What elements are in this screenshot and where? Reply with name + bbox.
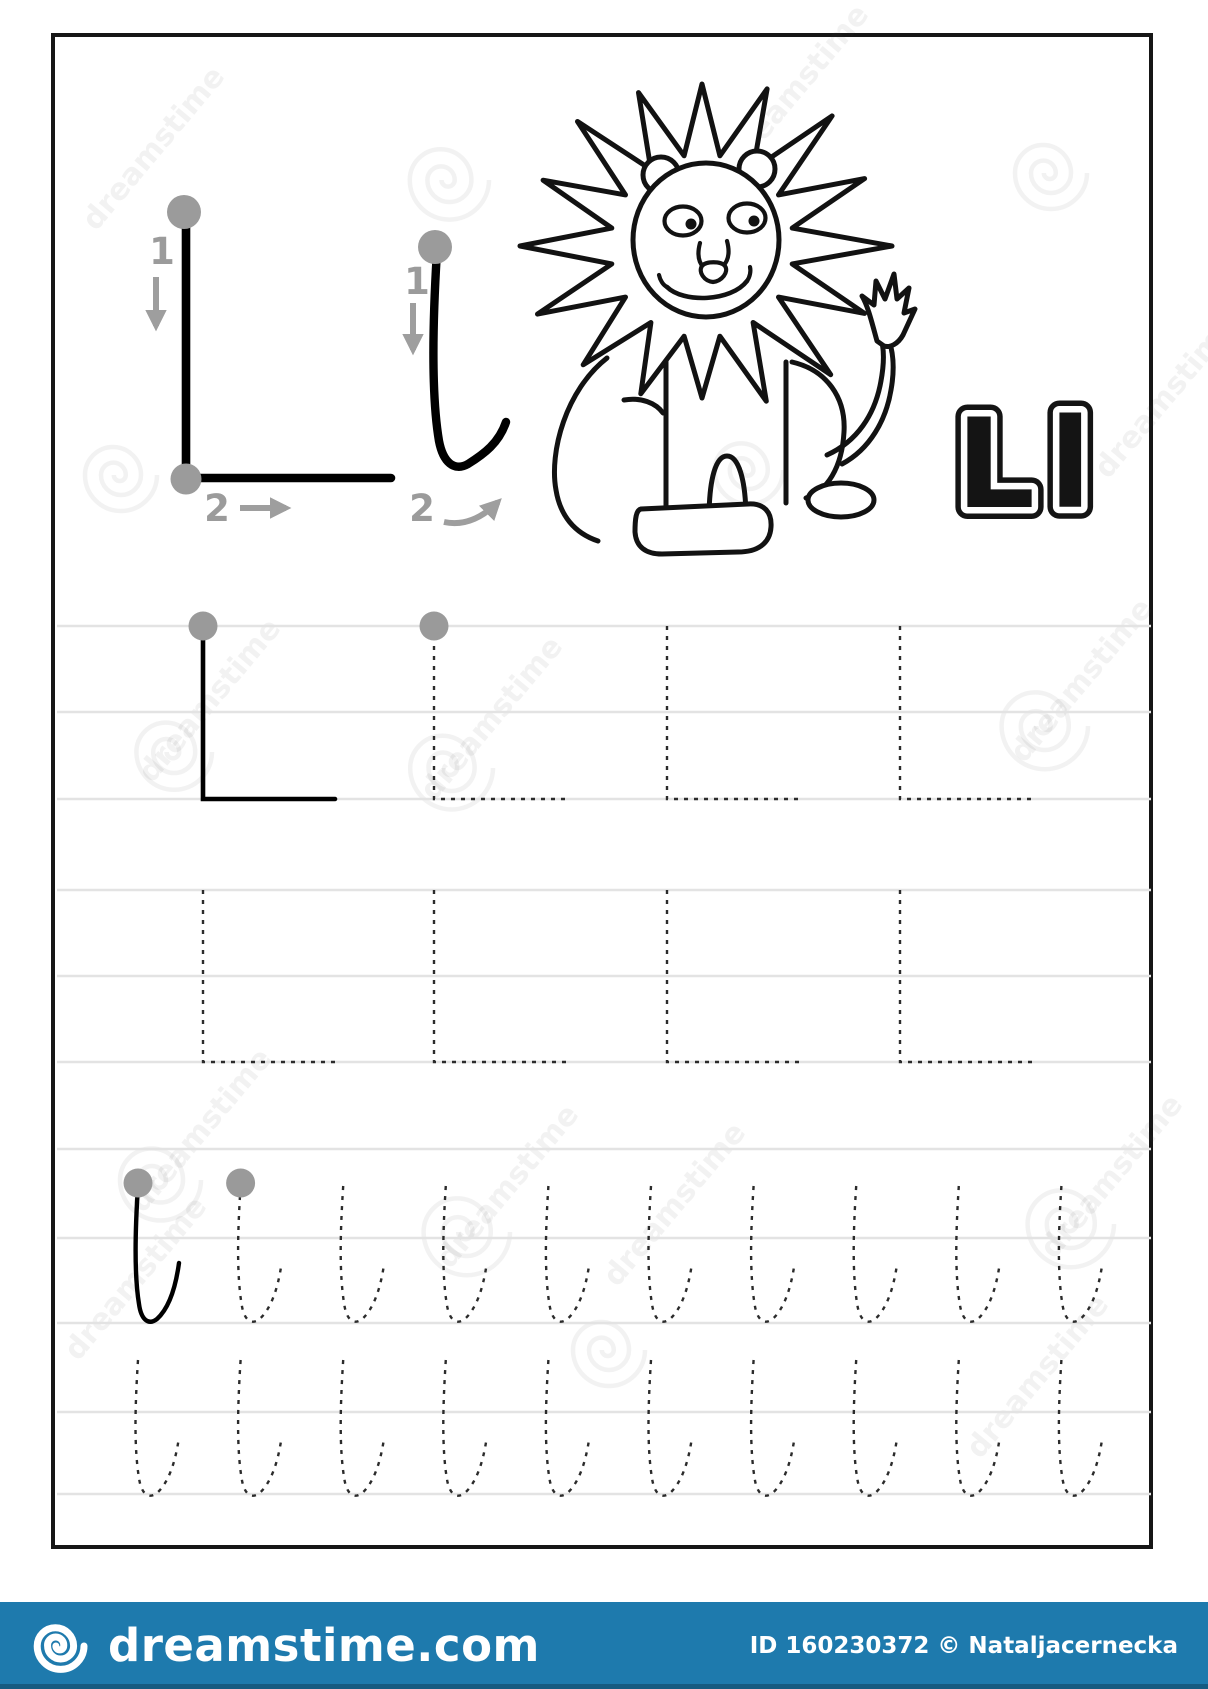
lion-hind-paw [808,483,874,517]
start-dot [418,230,452,264]
stroke-order-example-uppercase-L: 1 2 [149,195,391,530]
footer-edge [0,1684,1208,1689]
start-dot [189,612,218,641]
watermark-spiral-icon [1015,145,1087,209]
trace-letter-l-dashed [443,1360,487,1496]
display-letters: Ll Ll Ll [956,393,1106,537]
watermark-spiral-icon [573,1322,645,1386]
lion-chest-line [624,399,663,413]
stock-photo-canvas: dreamstimedreamstimedreamstimedreamstime… [0,0,1208,1689]
watermark-text: dreamstime [596,1116,753,1293]
example-lowercase-l-stroke [434,251,507,467]
tracing-rows [124,612,1103,1496]
trace-letter-l-dashed [854,1186,898,1322]
start-dot [226,1169,255,1198]
lion-body [554,358,607,541]
trace-letter-l-dashed [238,1360,282,1496]
watermark-spiral-icon [715,443,783,504]
start-dot [167,195,201,229]
lion-pupil [686,219,697,230]
trace-letter-l-dashed [341,1186,385,1322]
worksheet-art: dreamstimedreamstimedreamstimedreamstime… [0,0,1208,1689]
trace-letter-l-dashed [238,1186,282,1322]
lion-eye [665,207,702,236]
display-letter-pair-fill: Ll [956,393,1106,537]
footer-brand-text: dreamstime.com [108,1619,540,1672]
watermark-spiral-icon [410,149,489,219]
stroke-number-1: 1 [404,260,430,303]
stroke-order-example-lowercase-l: 1 2 [404,230,506,530]
trace-letter-l-dashed [546,1360,590,1496]
lion-nose [701,262,726,282]
watermark-text: dreamstime [959,1288,1116,1465]
footer-credit: ID 160230372 © Nataljacernecka [750,1633,1178,1659]
lion-haunch [792,362,844,498]
stroke-number-2: 2 [409,487,435,530]
example-uppercase-L-stroke [186,212,391,478]
watermark-text: dreamstime [1003,592,1160,769]
stroke-number-1: 1 [149,230,175,273]
trace-letter-l-dashed [854,1360,898,1496]
trace-letter-l-dashed [751,1360,795,1496]
trace-letter-l-dashed [751,1186,795,1322]
lion-feet [635,504,771,554]
trace-letter-l-dashed [649,1360,693,1496]
trace-letter-l-dashed [956,1186,1000,1322]
trace-letter-l-dashed [341,1360,385,1496]
trace-letter-l-dashed [1059,1360,1103,1496]
start-dot [171,464,202,495]
lion-eye [729,204,766,233]
curved-arrow-icon [444,502,498,523]
spiral-glyph [37,1627,84,1669]
lion-tail-tuft [862,274,915,347]
dreamstime-logo-spiral-icon [24,1612,92,1680]
start-dot [124,1169,153,1198]
lion-pupil [749,216,760,227]
footer-bar: dreamstime.com ID 160230372 © Nataljacer… [0,1602,1208,1689]
trace-letter-l-dashed [546,1186,590,1322]
trace-letter-l-dashed [136,1360,180,1496]
start-dot [420,612,449,641]
handwriting-guidelines [57,626,1151,1494]
stroke-number-2: 2 [204,487,230,530]
footer-brand: dreamstime.com [24,1612,540,1680]
lion-face [633,163,779,317]
watermark-text: dreamstime [75,60,232,237]
watermark-spiral-icon [85,447,157,511]
